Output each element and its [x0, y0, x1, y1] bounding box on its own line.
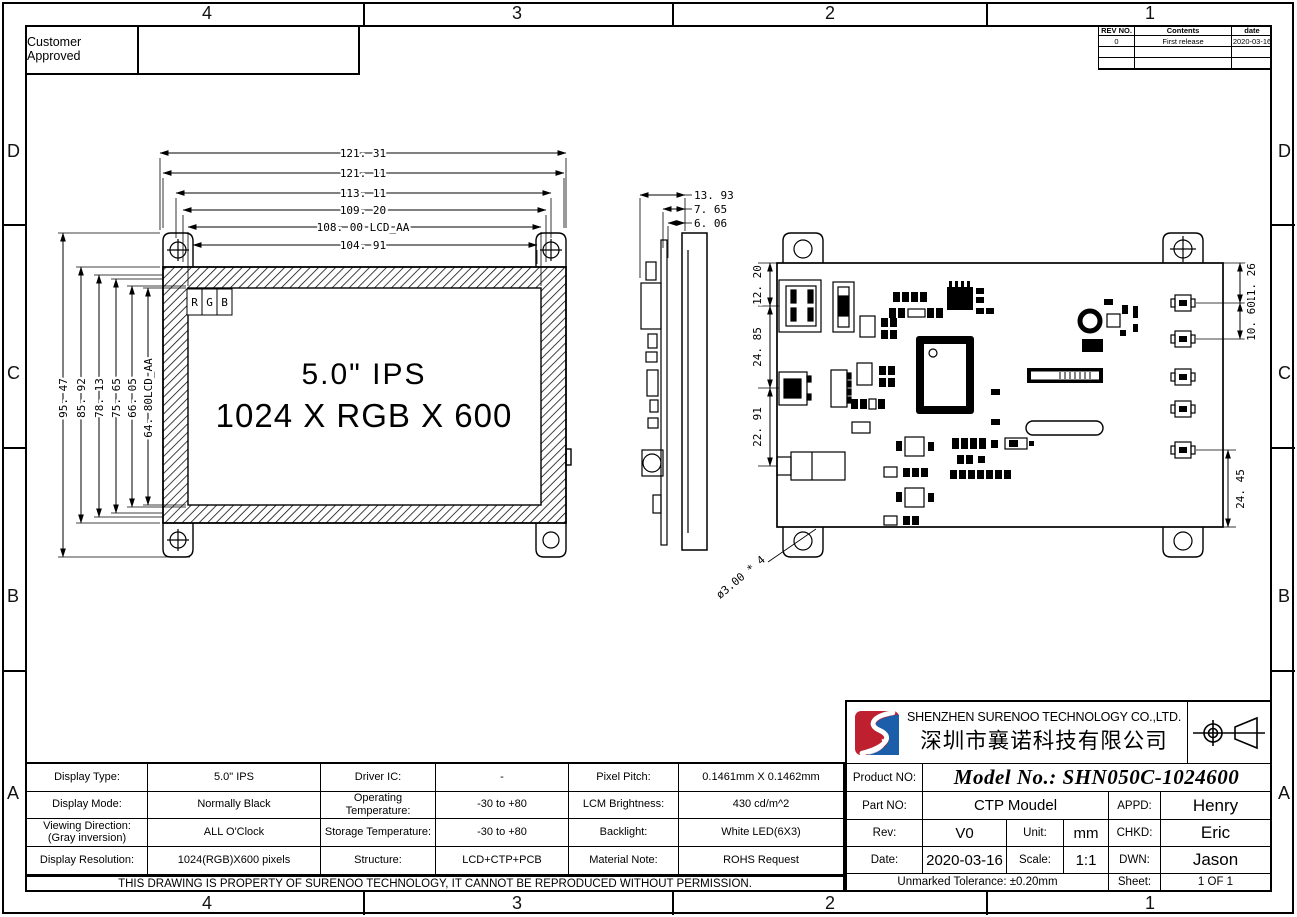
- rgb-pixel-boxes: R G B: [187, 289, 232, 315]
- dwn-label: DWN:: [1109, 847, 1161, 873]
- surenoo-logo-icon: [855, 711, 899, 755]
- revision-row: [1099, 47, 1272, 58]
- dim-label: 13. 93: [694, 189, 734, 202]
- rev-date: 2020-03-16: [1232, 36, 1272, 47]
- date-label: Date:: [847, 847, 923, 873]
- appd-value: Henry: [1161, 792, 1270, 819]
- date-value: 2020-03-16: [923, 847, 1007, 873]
- spec-value-driver-ic: -: [436, 764, 569, 792]
- rgb-label-r: R: [191, 296, 198, 309]
- company-name-cn: 深圳市襄诺科技有限公司: [907, 724, 1181, 755]
- spec-value-backlight: White LED(6X3): [679, 819, 843, 847]
- spec-value-display-type: 5.0" IPS: [148, 764, 321, 792]
- spec-label-lcm-brightness: LCM Brightness:: [569, 792, 679, 820]
- spec-label-structure: Structure:: [321, 847, 436, 875]
- side-connectors: [641, 262, 663, 513]
- customer-approved-box: Customer Approved: [25, 25, 360, 75]
- product-no-label: Product NO:: [847, 764, 923, 791]
- spec-value-display-mode: Normally Black: [148, 792, 321, 820]
- dim-label: 75. 65: [110, 378, 123, 418]
- dim-label: 24. 45: [1234, 469, 1247, 509]
- rev-contents: First release: [1135, 36, 1232, 47]
- rev-date: [1232, 58, 1272, 69]
- spec-label-display-resolution: Display Resolution:: [27, 847, 148, 875]
- dim-label: 113. 11: [340, 187, 386, 200]
- spec-label-display-mode: Display Mode:: [27, 792, 148, 820]
- customer-approved-signature-area: [139, 25, 358, 73]
- spec-label-display-type: Display Type:: [27, 764, 148, 792]
- back-view: 12. 20 24. 85 22. 91 11. 26 10. 60 24. 4…: [714, 233, 1258, 601]
- dim-label: 7. 65: [694, 203, 727, 216]
- rev-header-contents: Contents: [1135, 25, 1232, 36]
- front-view: R G B 5.0" IPS 1024 X RGB X 600: [163, 233, 571, 557]
- rev-header-no: REV NO.: [1099, 25, 1135, 36]
- model-no-value: Model No.: SHN050C-1024600: [923, 764, 1270, 791]
- spec-label-operating-temp: Operating Temperature:: [321, 792, 436, 820]
- spec-label-pixel-pitch: Pixel Pitch:: [569, 764, 679, 792]
- scale-value: 1:1: [1064, 847, 1109, 873]
- sheet-label: Sheet:: [1109, 874, 1161, 890]
- dim-label: 22. 91: [751, 407, 764, 447]
- revision-table: REV NO. Contents date 0 First release 20…: [1098, 25, 1272, 70]
- dim-label: 6. 06: [694, 217, 727, 230]
- spec-label-material-note: Material Note:: [569, 847, 679, 875]
- dim-label: 121. 31: [340, 147, 386, 160]
- chkd-label: CHKD:: [1109, 820, 1161, 846]
- hole-diameter-note: ø3.00 * 4: [714, 529, 816, 601]
- company-cell: SHENZHEN SURENOO TECHNOLOGY CO.,LTD. 深圳市…: [847, 702, 1188, 763]
- spec-value-storage-temp: -30 to +80: [436, 819, 569, 847]
- dim-label: ø3.00 * 4: [714, 553, 768, 602]
- screen-size-text: 5.0" IPS: [301, 358, 426, 391]
- rev-no: [1099, 58, 1135, 69]
- dim-label: 12. 20: [751, 265, 764, 305]
- dim-label: 104. 91: [340, 239, 386, 252]
- rgb-label-b: B: [221, 296, 228, 309]
- third-angle-projection-icon: [1191, 711, 1267, 755]
- rev-no: 0: [1099, 36, 1135, 47]
- rev-label: Rev:: [847, 820, 923, 846]
- pcb-slot: [1026, 421, 1103, 435]
- dim-label: 66. 05: [126, 378, 139, 418]
- unit-label: Unit:: [1007, 820, 1064, 846]
- spec-value-display-resolution: 1024(RGB)X600 pixels: [148, 847, 321, 875]
- sheet-value: 1 OF 1: [1161, 874, 1270, 890]
- side-pcb: [661, 240, 667, 545]
- back-dims-left: 12. 20 24. 85 22. 91: [751, 263, 779, 466]
- spec-value-operating-temp: -30 to +80: [436, 792, 569, 820]
- spec-label-viewing-direction: Viewing Direction: (Gray inversion): [27, 819, 148, 847]
- chkd-value: Eric: [1161, 820, 1270, 846]
- rev-contents: [1135, 58, 1232, 69]
- title-block: SHENZHEN SURENOO TECHNOLOGY CO.,LTD. 深圳市…: [845, 700, 1272, 892]
- dim-label: 95. 47: [57, 378, 70, 418]
- dim-label: 10. 60: [1245, 301, 1258, 341]
- side-view: 13. 93 7. 65 6. 06: [640, 189, 734, 550]
- dim-label: 108. 00 LCD_AA: [317, 221, 410, 234]
- rev-contents: [1135, 47, 1232, 58]
- spec-label-driver-ic: Driver IC:: [321, 764, 436, 792]
- revision-row: [1099, 58, 1272, 69]
- dim-label: 24. 85: [751, 327, 764, 367]
- ffc-connector: [1027, 368, 1103, 383]
- spec-value-material-note: ROHS Request: [679, 847, 843, 875]
- dim-label: 85. 92: [75, 378, 88, 418]
- side-panel: [682, 233, 707, 550]
- projection-symbol-cell: [1188, 702, 1270, 763]
- rgb-label-g: G: [206, 296, 213, 309]
- tolerance-note: Unmarked Tolerance: ±0.20mm: [847, 874, 1109, 890]
- screen-resolution-text: 1024 X RGB X 600: [216, 397, 513, 434]
- dim-label: 78. 13: [93, 378, 106, 418]
- spec-value-structure: LCD+CTP+PCB: [436, 847, 569, 875]
- rev-date: [1232, 47, 1272, 58]
- rev-header-date: date: [1232, 25, 1272, 36]
- dim-label: 64. 80LCD_AA: [142, 358, 155, 438]
- engineering-drawing-sheet: { "zones": { "top": ["4","3","2","1"], "…: [0, 0, 1297, 917]
- rev-no: [1099, 47, 1135, 58]
- appd-label: APPD:: [1109, 792, 1161, 819]
- spec-label-storage-temp: Storage Temperature:: [321, 819, 436, 847]
- dim-label: 121. 11: [340, 167, 386, 180]
- rev-value: V0: [923, 820, 1007, 846]
- unit-value: mm: [1064, 820, 1109, 846]
- spec-label-backlight: Backlight:: [569, 819, 679, 847]
- spec-value-pixel-pitch: 0.1461mm X 0.1462mm: [679, 764, 843, 792]
- dwn-value: Jason: [1161, 847, 1270, 873]
- spec-value-viewing-direction: ALL O'Clock: [148, 819, 321, 847]
- scale-label: Scale:: [1007, 847, 1064, 873]
- front-dims-top: 121. 31 121. 11 113. 11 109. 20 108. 00 …: [160, 147, 566, 286]
- spec-table: Display Type: 5.0" IPS Driver IC: - Pixe…: [25, 762, 845, 876]
- part-no-label: Part NO:: [847, 792, 923, 819]
- main-ic-qfp: [916, 336, 974, 414]
- revision-row: 0 First release 2020-03-16: [1099, 36, 1272, 47]
- part-no-value: CTP Moudel: [923, 792, 1109, 819]
- customer-approved-label: Customer Approved: [27, 25, 139, 73]
- dim-label: 109. 20: [340, 204, 386, 217]
- property-notice: THIS DRAWING IS PROPERTY OF SURENOO TECH…: [25, 875, 845, 892]
- dim-label: 11. 26: [1245, 263, 1258, 303]
- spec-value-lcm-brightness: 430 cd/m^2: [679, 792, 843, 820]
- company-name-en: SHENZHEN SURENOO TECHNOLOGY CO.,LTD.: [907, 710, 1181, 724]
